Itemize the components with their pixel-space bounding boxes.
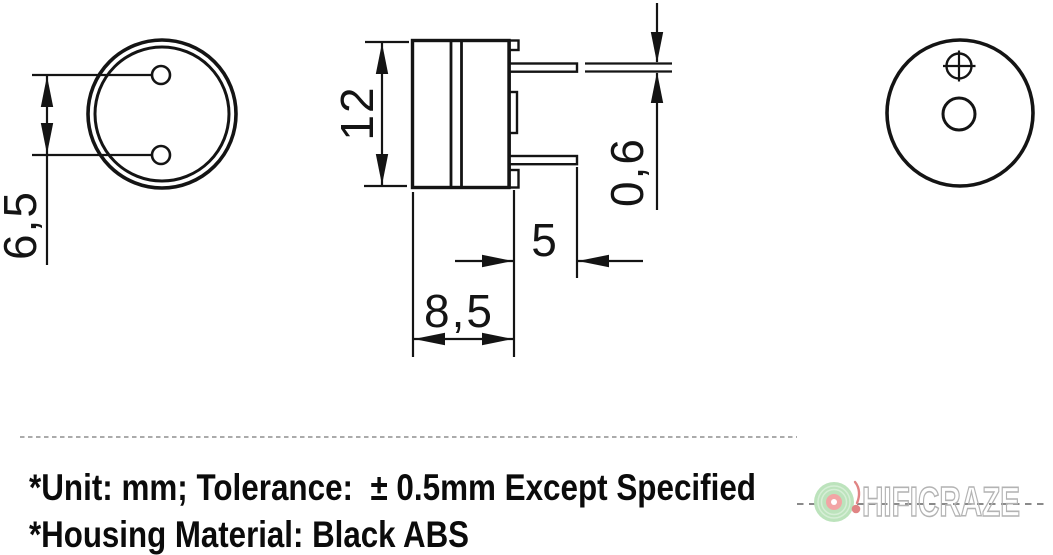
arrow-up-icon (41, 76, 53, 107)
dim-width-label: 8,5 (424, 285, 494, 337)
pin-bottom (509, 156, 577, 164)
note-line-1: *Unit: mm; Tolerance: ± 0.5mm Except Spe… (29, 467, 756, 508)
disc-hole (831, 499, 837, 505)
dim-height-label: 12 (331, 85, 383, 140)
dim-width: 8,5 (413, 190, 514, 357)
notes: *Unit: mm; Tolerance: ± 0.5mm Except Spe… (20, 437, 797, 555)
dim-pin-thickness-label: 0,6 (601, 137, 653, 207)
brand-logo (814, 482, 860, 522)
technical-drawing: 6,5 12 0,6 (0, 0, 1053, 555)
arrow-up-icon (651, 72, 663, 103)
front-view (887, 40, 1033, 186)
side-view: 12 0,6 5 8,5 (331, 3, 672, 357)
dim-pin-pitch-label: 6,5 (0, 190, 46, 260)
tonearm-head (852, 505, 861, 514)
arrow-down-icon (651, 32, 663, 63)
arrow-down-icon (376, 154, 388, 185)
dim-pin-thickness: 0,6 (585, 3, 672, 210)
pin-hole-bottom (152, 146, 170, 164)
top-view: 6,5 (0, 40, 236, 265)
arrow-right-icon (482, 255, 513, 267)
polarity-cross-icon (943, 51, 976, 82)
dim-height: 12 (331, 42, 409, 186)
dim-pin-length-label: 5 (531, 214, 559, 266)
pin-hole-top (152, 66, 170, 84)
arrow-left-icon (578, 255, 609, 267)
sound-hole (943, 98, 975, 130)
dim-pin-pitch: 6,5 (0, 75, 152, 265)
arrow-up-icon (376, 43, 388, 74)
note-line-2: *Housing Material: Black ABS (29, 514, 469, 555)
pin-top (509, 64, 577, 72)
drawing-page: 6,5 12 0,6 (0, 0, 1053, 555)
tonearm-icon (855, 482, 859, 503)
brand-text: HIFICRAZE (862, 478, 1020, 525)
case-outline (88, 40, 236, 188)
watermark: HIFICRAZE (797, 478, 1047, 525)
arrow-down-icon (41, 123, 53, 154)
